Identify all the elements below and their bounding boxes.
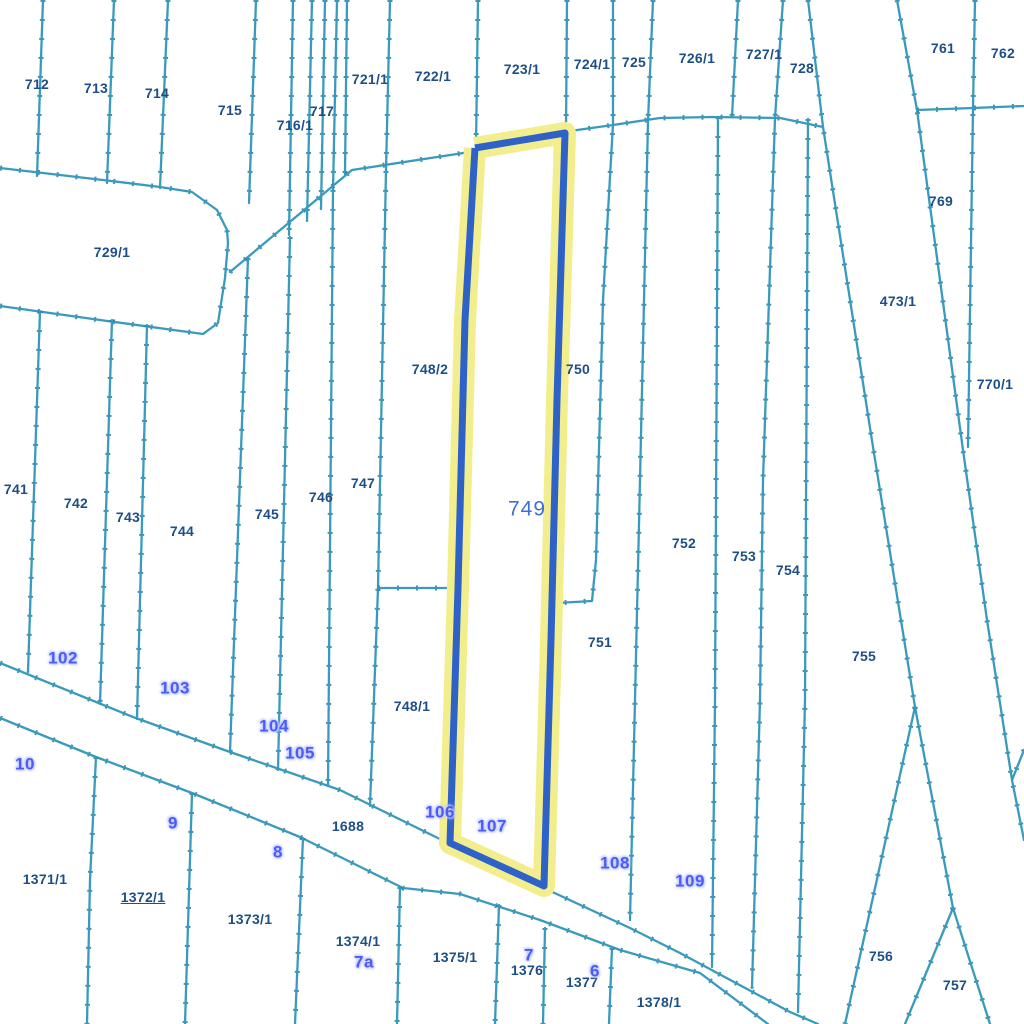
point-number-7a: 7a (354, 954, 374, 971)
boundary-line (609, 948, 612, 1024)
parcel-number-751: 751 (588, 635, 612, 649)
parcel-number-724-1: 724/1 (574, 57, 611, 71)
parcel-number-755: 755 (852, 649, 876, 663)
parcel-number-716-1: 716/1 (277, 118, 314, 132)
parcel-number-743: 743 (116, 510, 140, 524)
boundary-line (543, 928, 545, 1024)
parcel-number-722-1: 722/1 (415, 69, 452, 83)
parcel-number-746: 746 (309, 490, 333, 504)
parcel-number-761: 761 (931, 41, 955, 55)
parcel-number-770-1: 770/1 (977, 377, 1014, 391)
point-number-108: 108 (600, 855, 630, 872)
parcel-number-728: 728 (790, 61, 814, 75)
boundary-line (953, 908, 990, 1024)
parcel-number-753: 753 (732, 549, 756, 563)
parcel-number-756: 756 (869, 949, 893, 963)
parcel-number-769: 769 (929, 194, 953, 208)
boundary-line (845, 707, 915, 1024)
boundary-line (915, 707, 953, 908)
parcel-number-713: 713 (84, 81, 108, 95)
point-number-8: 8 (273, 844, 283, 861)
point-number-107: 107 (477, 818, 507, 835)
boundary-line (1012, 750, 1024, 840)
parcel-number-747: 747 (351, 476, 375, 490)
parcel-number-1688: 1688 (332, 819, 364, 833)
parcel-number-729-1: 729/1 (94, 245, 131, 259)
parcel-number-715: 715 (218, 103, 242, 117)
point-number-9: 9 (168, 815, 178, 832)
point-number-106: 106 (425, 804, 455, 821)
point-number-6: 6 (590, 963, 600, 980)
point-number-10: 10 (15, 756, 35, 773)
parcel-number-744: 744 (170, 524, 194, 538)
parcel-number-748-1: 748/1 (394, 699, 431, 713)
boundary-line (905, 908, 953, 1024)
parcel-number-1373-1: 1373/1 (228, 912, 273, 926)
boundary-line (100, 320, 112, 704)
parcel-number-725: 725 (622, 55, 646, 69)
boundary-line (495, 905, 499, 1024)
boundary-line (808, 0, 915, 707)
parcel-number-721-1: 721/1 (352, 72, 389, 86)
point-number-7: 7 (524, 947, 534, 964)
boundary-line (476, 0, 478, 146)
parcel-number-1375-1: 1375/1 (433, 950, 478, 964)
boundary-line (28, 311, 40, 672)
boundary-line (752, 0, 783, 988)
parcel-number-714: 714 (145, 86, 169, 100)
boundary-line (566, 0, 567, 131)
boundary-line (295, 838, 303, 1024)
parcel-number-750: 750 (566, 362, 590, 376)
boundary-line (630, 0, 653, 920)
parcel-number-712: 712 (25, 77, 49, 91)
boundary-line (0, 663, 448, 843)
cadastral-map[interactable]: 712713714715716/1717721/1722/1723/1724/1… (0, 0, 1024, 1024)
parcel-number-473-1: 473/1 (880, 294, 917, 308)
boundary-line (548, 890, 818, 1024)
parcel-number-754: 754 (776, 563, 800, 577)
parcel-number-717: 717 (310, 104, 334, 118)
parcel-number-748-2: 748/2 (412, 362, 449, 376)
parcel-number-1372-1: 1372/1 (121, 890, 166, 904)
parcel-number-762: 762 (991, 46, 1015, 60)
parcel-number-752: 752 (672, 536, 696, 550)
parcel-number-1378-1: 1378/1 (637, 995, 682, 1009)
parcel-number-1371-1: 1371/1 (23, 872, 68, 886)
highlighted-parcel-number-749: 749 (508, 499, 546, 520)
boundary-line (0, 718, 768, 1024)
point-number-102: 102 (48, 650, 78, 667)
point-number-109: 109 (675, 873, 705, 890)
point-number-103: 103 (160, 680, 190, 697)
boundary-line (0, 306, 203, 334)
parcel-number-723-1: 723/1 (504, 62, 541, 76)
parcel-number-1374-1: 1374/1 (336, 934, 381, 948)
point-number-105: 105 (285, 745, 315, 762)
boundary-tick-marks (548, 890, 818, 1024)
parcel-number-757: 757 (943, 978, 967, 992)
boundary-line (917, 106, 1024, 110)
point-number-104: 104 (259, 718, 289, 735)
parcel-number-1376: 1376 (511, 963, 543, 977)
parcel-number-741: 741 (4, 482, 28, 496)
parcel-number-727-1: 727/1 (746, 47, 783, 61)
boundary-line (230, 258, 248, 752)
parcel-number-745: 745 (255, 507, 279, 521)
parcel-number-742: 742 (64, 496, 88, 510)
parcel-number-726-1: 726/1 (679, 51, 716, 65)
boundary-line (345, 0, 347, 174)
boundary-line (968, 0, 975, 447)
boundary-line (278, 237, 290, 770)
